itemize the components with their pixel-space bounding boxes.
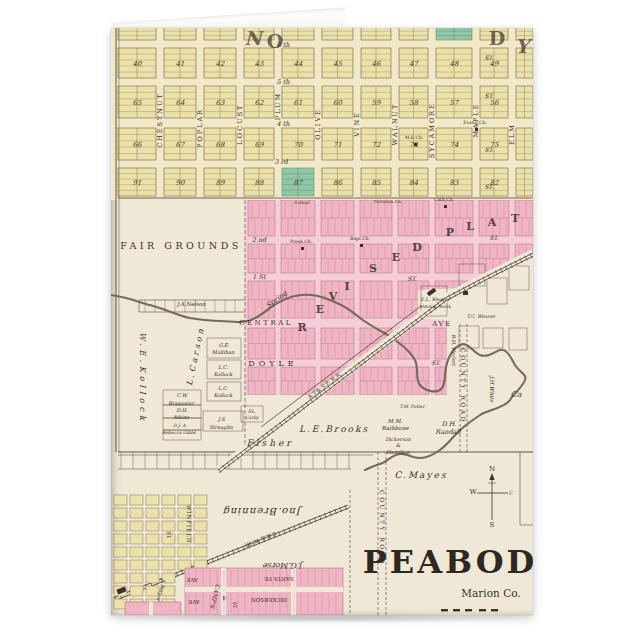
map-label-jno-brenning: Jno.Brenning bbox=[223, 506, 301, 516]
map-label-r: R bbox=[297, 322, 306, 333]
map-label-d-h: D.H. bbox=[176, 408, 187, 413]
map-label-plum: PLUM bbox=[275, 92, 282, 120]
map-label-doyle: DOYLE bbox=[248, 360, 297, 368]
map-label-mollihan: Mollihan bbox=[212, 350, 234, 355]
map-label-v: V bbox=[329, 291, 338, 302]
map-label-j-a-nelson: J.A.Nelson bbox=[177, 302, 206, 308]
fold-crease bbox=[111, 7, 347, 26]
map-label-kollock: Kollock bbox=[214, 372, 233, 377]
map-label-e: E bbox=[316, 304, 324, 315]
map-label-d-h: D.H. bbox=[442, 421, 457, 428]
map-label-a-t-s-f-r-r: A.T.& S.F. R.R. bbox=[307, 372, 343, 401]
map-label-y: Y bbox=[515, 37, 529, 56]
map-label-l-e-brooks: L.E.Brooks bbox=[299, 425, 369, 434]
map-label-presb-ch: Presb.Ch. bbox=[290, 240, 312, 245]
map-label-c-mayes: C.Mayes bbox=[394, 471, 447, 480]
map-label-p: P bbox=[446, 227, 454, 238]
map-label-rebecca-gibbs: Rebecca Gibbs bbox=[162, 431, 196, 436]
card-shadow bbox=[118, 613, 528, 623]
product-photo: 4041424344454647484965646362616059585756… bbox=[0, 0, 644, 644]
map-label-elm: ELM bbox=[509, 123, 516, 145]
map-label-s: S bbox=[369, 263, 377, 274]
map-label-a: A bbox=[488, 217, 497, 228]
map-label-5-th: 5 th bbox=[277, 79, 290, 86]
map-label-rathbone: Rathbone bbox=[382, 426, 409, 432]
map-label-w-e-kollock: W.E.Kollock bbox=[138, 332, 146, 424]
map-label-st: ST. bbox=[484, 55, 493, 61]
map-label-l-c: L.C. bbox=[218, 386, 228, 391]
map-label-1-st: 1 St bbox=[252, 274, 265, 281]
map-label-bragunier: Bragunier bbox=[168, 401, 194, 406]
map-label-st: ST bbox=[232, 602, 237, 609]
map-label-winfield: WINFIELD bbox=[185, 505, 191, 544]
map-label-l-c: L.C. bbox=[218, 365, 228, 370]
map-label-dickerson: DICKERSON bbox=[251, 596, 287, 602]
map-label-st: ST. bbox=[166, 531, 171, 539]
map-label-mitch-north: Mitch & North bbox=[419, 305, 450, 309]
map-labels-layer: NODYCHESTNUTPOPLARLOCUSTPLUMOLIVEVINEWAL… bbox=[111, 28, 533, 615]
map-label-j-s: J.S. bbox=[218, 417, 226, 422]
map-label-e: E bbox=[392, 252, 400, 263]
map-label-t-c-weaver: T.C. Weaver bbox=[467, 315, 496, 320]
map-label-olive: OLIVE bbox=[315, 108, 322, 140]
map-label-t-m-potter: T.M. Potter bbox=[399, 405, 424, 410]
map-label-chestnut: CHESTNUT bbox=[157, 92, 164, 148]
map-label-j-g-morse: J.G.Morse bbox=[263, 561, 302, 569]
map-label-peabody: PEABODY bbox=[363, 546, 533, 578]
map-label-i: I bbox=[344, 281, 349, 292]
map-label-t: T bbox=[511, 213, 519, 224]
map-label-cath-ch: Cath.Ch. bbox=[434, 198, 454, 203]
map-label-2-nd: 2 nd bbox=[252, 237, 267, 244]
map-label-marion-co: Marion Co. bbox=[461, 588, 520, 599]
map-label-evang-ch: Evang.Ch. bbox=[463, 121, 487, 126]
map-label-spring: Spring bbox=[265, 290, 288, 310]
map-label-m-e-ch: M.E.Ch. bbox=[405, 136, 424, 141]
map-label-sycamore: SYCAMORE bbox=[429, 102, 436, 158]
map-label-vine: VINE bbox=[354, 111, 361, 137]
map-label-j-h-white: J.H.White bbox=[488, 376, 494, 403]
map-label-central: CENTRAL bbox=[239, 320, 293, 327]
map-label-poplar: POPLAR bbox=[197, 108, 204, 148]
map-label-fair-grounds: FAIR GROUNDS bbox=[120, 241, 242, 251]
map-label-c-w: C.W. bbox=[176, 393, 187, 398]
map-label-st: ST. bbox=[431, 360, 440, 366]
map-label-b-h-hazlett: B.H. Hazlett bbox=[451, 334, 456, 365]
map-label-straughn: Straughn bbox=[209, 425, 233, 430]
map-label-ca: Ca bbox=[511, 391, 522, 399]
map-label-county-road: COUNTY ROAD bbox=[460, 348, 466, 424]
map-label-randall: Randall bbox=[435, 429, 460, 436]
map-label-d: D bbox=[412, 242, 422, 253]
map-label-e: E bbox=[509, 490, 513, 496]
map-label-st: ST. bbox=[489, 235, 498, 241]
map-label-l-carson: L.Carson bbox=[186, 326, 206, 387]
map-label-w: W bbox=[469, 489, 476, 496]
map-label-a-berger: A.Berger bbox=[156, 578, 167, 601]
map-label-l: L bbox=[466, 221, 474, 232]
map-label-g-e: G.E. bbox=[219, 343, 230, 348]
map-label-e-l-weaver: E.L. Weaver bbox=[420, 298, 449, 303]
greeting-card-front: 4041424344454647484965646362616059585756… bbox=[111, 28, 533, 615]
map-label-st: ST. bbox=[484, 147, 493, 153]
map-label-s: S bbox=[490, 522, 495, 529]
map-label-st: ST. bbox=[484, 93, 493, 99]
map-label-atkins: Atkins bbox=[173, 415, 189, 420]
map-label-4: 4 bbox=[222, 595, 226, 601]
map-label-: & bbox=[396, 443, 400, 448]
map-label-santa-fe: SANTA FE bbox=[264, 575, 293, 581]
map-label-p-l: P.L. bbox=[248, 410, 256, 415]
map-label-camp-s: CAMP'S bbox=[209, 583, 221, 609]
map-label-kollock: Kollock bbox=[214, 393, 233, 398]
map-label-school: School bbox=[294, 201, 309, 206]
map-label-m-m: M.M. bbox=[388, 419, 403, 425]
map-label-locust: LOCUST bbox=[237, 104, 244, 145]
map-label-bapt-ch: Bapt.Ch. bbox=[350, 237, 370, 242]
map-label-ave: AVE bbox=[186, 576, 198, 582]
map-label-christian-ch: Christian Ch. bbox=[374, 200, 402, 204]
card-back-panel bbox=[111, 7, 347, 29]
map-label-4-th: 4 th bbox=[277, 121, 290, 128]
map-label-n: N bbox=[244, 29, 261, 48]
map-label-st: ST. bbox=[484, 184, 493, 190]
map-label-corby: Corby bbox=[245, 416, 259, 421]
map-label-d-j-a: D.J. A. bbox=[173, 424, 187, 429]
map-label-fisher: Fisher bbox=[246, 439, 293, 448]
map-label-d: D bbox=[489, 29, 505, 48]
map-label-walnut: WALNUT bbox=[392, 103, 399, 146]
map-label-6-th: 6 th bbox=[277, 42, 290, 49]
map-label-st: ST. bbox=[407, 276, 416, 282]
map-label-c-k-w-ry: C.K.& W. RY bbox=[243, 530, 277, 548]
map-label-hamilton: Hamilton bbox=[386, 450, 410, 455]
map-label-3-rd: 3 rd bbox=[274, 159, 287, 166]
map-label-ave: AVE bbox=[432, 321, 451, 328]
map-label-ave: AVE bbox=[188, 598, 200, 604]
map-label-n: N bbox=[489, 466, 495, 473]
